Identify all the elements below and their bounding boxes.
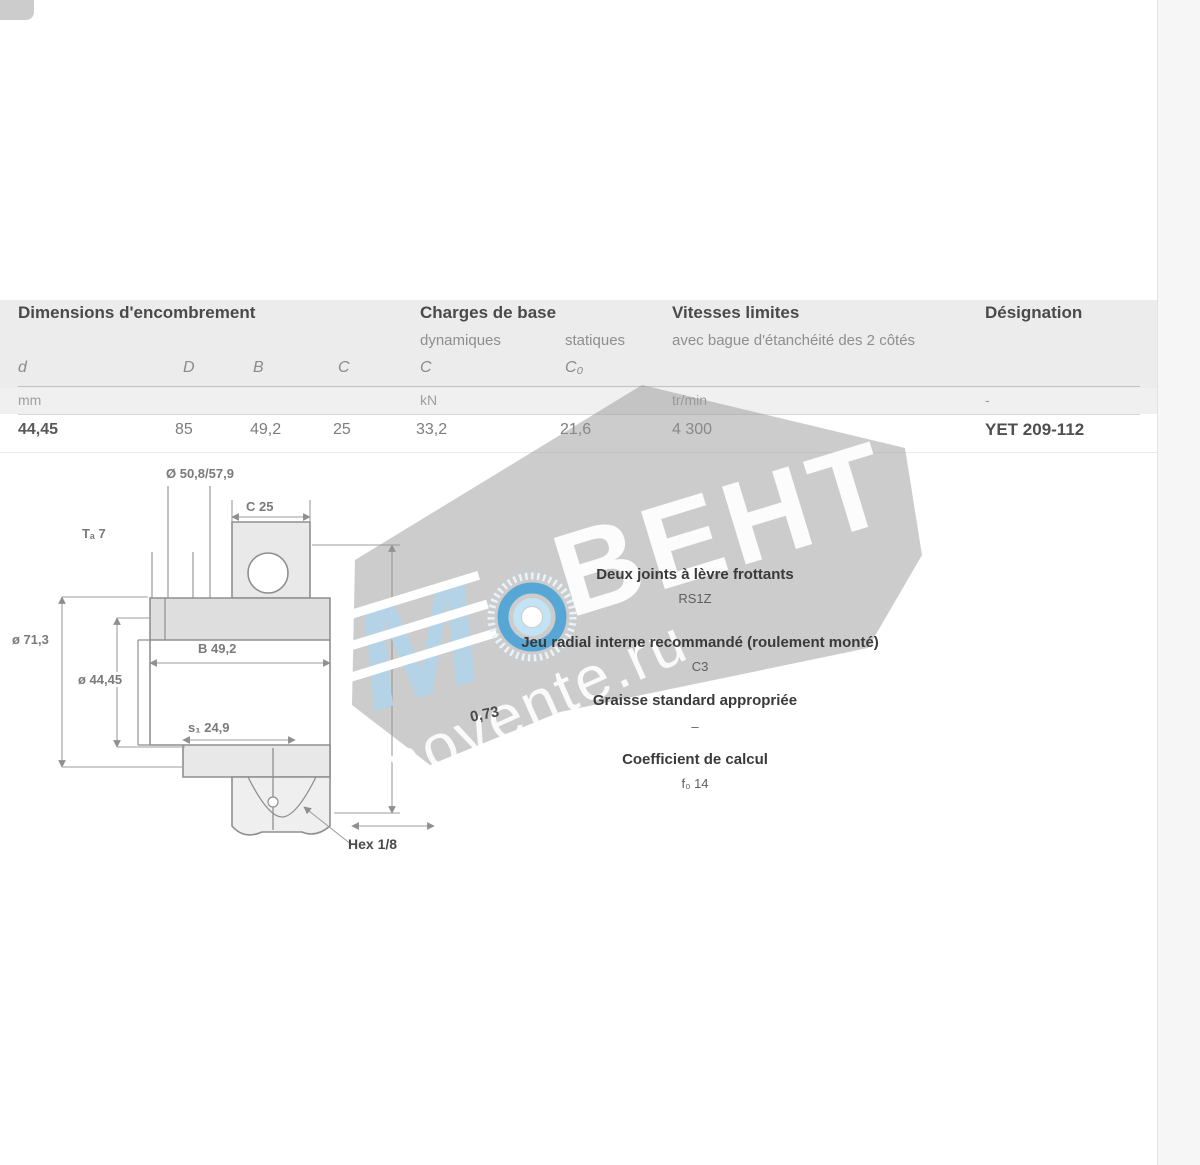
shaft-sleeve (183, 745, 330, 777)
cell-bore-diameter: 44,45 (18, 421, 58, 439)
label-bore-diameter: ø 44,45 (76, 672, 124, 687)
spec-grease-value: – (530, 719, 860, 734)
spec-clearance-label: Jeu radial interne recommandé (roulement… (500, 634, 900, 651)
subheader-static: statiques (565, 332, 625, 349)
outer-ring-top (232, 522, 310, 598)
label-collar-diameter: ø 71,3 (12, 632, 49, 647)
cell-width-C: 25 (333, 421, 351, 439)
label-outer-ring-width: C 25 (246, 499, 273, 514)
spec-grease-label: Graisse standard appropriée (530, 692, 860, 709)
cell-static-load: 21,6 (560, 421, 591, 439)
set-screw (268, 797, 278, 807)
unit-speeds: tr/min (672, 392, 707, 408)
symbol-C: C (338, 359, 350, 377)
unit-designation: - (985, 392, 990, 408)
spec-seals-label: Deux joints à lèvre frottants (530, 566, 860, 583)
spec-factor-value: f₀ 14 (530, 776, 860, 791)
spec-seals-value: RS1Z (530, 591, 860, 606)
spec-clearance-value: C3 (500, 659, 900, 674)
col-group-dimensions: Dimensions d'encombrement (18, 303, 255, 323)
ball (248, 553, 288, 593)
table-units-band (0, 388, 1157, 414)
inner-ring-band (150, 598, 330, 640)
cell-limiting-speed: 4 300 (672, 421, 712, 439)
subheader-dynamic: dynamiques (420, 332, 501, 349)
hex-leader (304, 807, 352, 845)
cell-dynamic-load: 33,2 (416, 421, 447, 439)
symbol-d: d (18, 359, 27, 377)
label-hex-size: Hex 1/8 (348, 836, 397, 852)
locking-collar (232, 777, 330, 835)
label-ring-width: B 49,2 (196, 641, 238, 656)
col-group-speeds: Vitesses limites (672, 303, 799, 323)
col-group-designation: Désignation (985, 303, 1082, 323)
label-ta: Tₐ 7 (82, 526, 106, 541)
symbol-D: D (183, 359, 195, 377)
bearing-parts (138, 486, 330, 835)
scan-artifact (0, 0, 34, 20)
cell-outer-diameter: 85 (175, 421, 193, 439)
table-rule-top (18, 386, 1140, 387)
symbol-C-dyn: C (420, 359, 432, 377)
datasheet-page: { "table": { "group_headers": { "dimensi… (0, 0, 1200, 1165)
leader-lines-top (168, 486, 210, 598)
spec-factor-label: Coefficient de calcul (530, 751, 860, 768)
cell-width-B: 49,2 (250, 421, 281, 439)
label-s1: s₁ 24,9 (186, 720, 232, 735)
label-top-diameters: Ø 50,8/57,9 (166, 466, 234, 481)
leader-lines-mid (152, 552, 193, 598)
logo-m-stripes (332, 571, 498, 681)
symbol-B: B (253, 359, 264, 377)
symbol-C0: C₀ (565, 359, 583, 377)
watermark-brand-text: ВЕНТ (539, 416, 908, 643)
col-group-loads: Charges de base (420, 303, 556, 323)
page-right-margin (1157, 0, 1200, 1165)
subheader-speed-note: avec bague d'étanchéité des 2 côtés (672, 332, 915, 349)
unit-loads: kN (420, 392, 437, 408)
table-rule-bottom (0, 452, 1157, 453)
unit-dimensions: mm (18, 392, 41, 408)
label-mass: 0,73 (469, 703, 501, 726)
cell-designation: YET 209-112 (985, 420, 1084, 440)
table-rule-mid (18, 414, 1140, 415)
